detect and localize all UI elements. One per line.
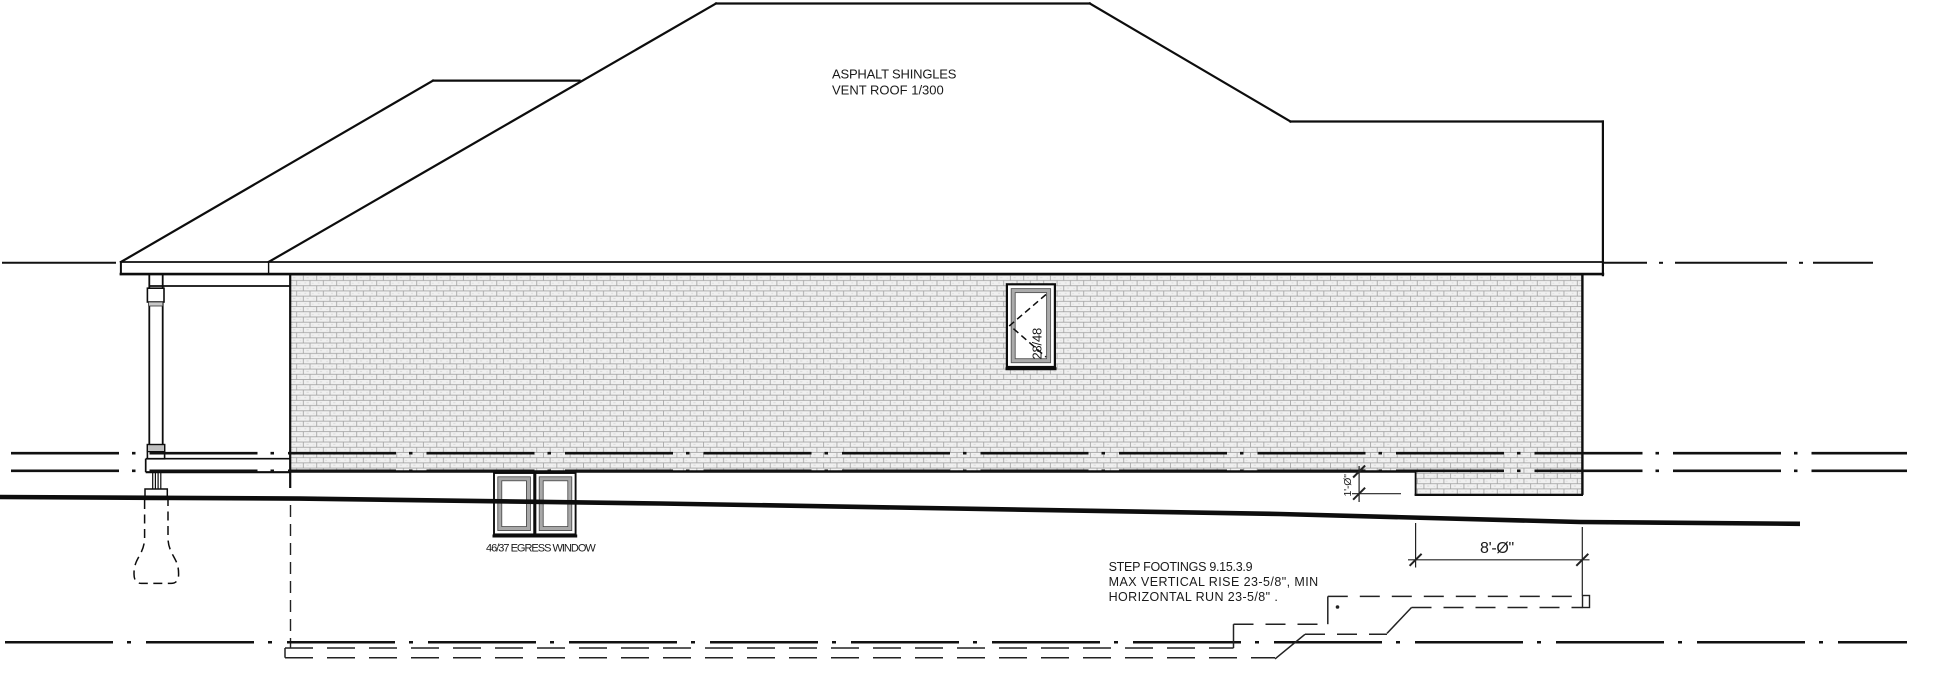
svg-text:1'-Ø": 1'-Ø" bbox=[1342, 474, 1354, 497]
svg-text:HORIZONTAL RUN 23-5/8" .: HORIZONTAL RUN 23-5/8" . bbox=[1109, 590, 1279, 604]
svg-text:MAX VERTICAL RISE 23-5/8", MIN: MAX VERTICAL RISE 23-5/8", MIN bbox=[1109, 575, 1319, 589]
svg-text:28/48: 28/48 bbox=[1030, 328, 1045, 360]
svg-text:46/37 EGRESS WINDOW: 46/37 EGRESS WINDOW bbox=[486, 543, 596, 555]
svg-text:VENT ROOF 1/300: VENT ROOF 1/300 bbox=[832, 83, 944, 98]
svg-text:STEP FOOTINGS 9.15.3.9: STEP FOOTINGS 9.15.3.9 bbox=[1109, 560, 1253, 574]
svg-text:ASPHALT SHINGLES: ASPHALT SHINGLES bbox=[832, 66, 957, 81]
svg-text:8'-Ø": 8'-Ø" bbox=[1480, 540, 1514, 557]
